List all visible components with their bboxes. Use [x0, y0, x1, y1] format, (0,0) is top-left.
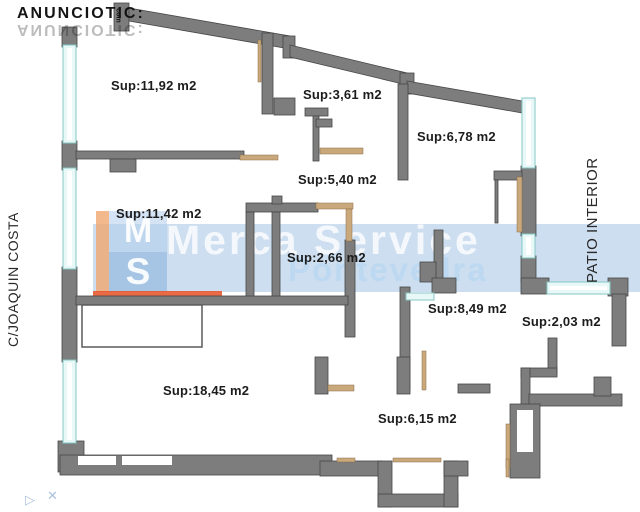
corner-cursor-icon: ▷	[25, 492, 35, 508]
room-label-5-40: Sup:5,40 m2	[298, 172, 377, 187]
room-label-6-15: Sup:6,15 m2	[378, 411, 457, 426]
room-label-6-78: Sup:6,78 m2	[417, 129, 496, 144]
closet-outline	[82, 305, 202, 347]
room-label-2-66: Sup:2,66 m2	[287, 250, 366, 265]
room-label-3-61: Sup:3,61 m2	[303, 87, 382, 102]
floorplan-page: M S Merca Service Pontevedra	[0, 0, 640, 512]
site-logo-suffix: com	[115, 8, 122, 22]
corner-cross-icon: ✕	[47, 488, 58, 504]
patio-label: PATIO INTERIOR	[584, 157, 601, 283]
room-label-11-92: Sup:11,92 m2	[111, 78, 197, 93]
room-label-2-03: Sup:2,03 m2	[522, 314, 601, 329]
room-label-8-49: Sup:8,49 m2	[428, 301, 507, 316]
site-logo-reflection: ANUNCIOTIC:	[17, 20, 145, 38]
room-label-11-42: Sup:11,42 m2	[116, 206, 202, 221]
room-label-18-45: Sup:18,45 m2	[163, 383, 249, 398]
street-label: C/JOAQUIN COSTA	[5, 212, 21, 347]
